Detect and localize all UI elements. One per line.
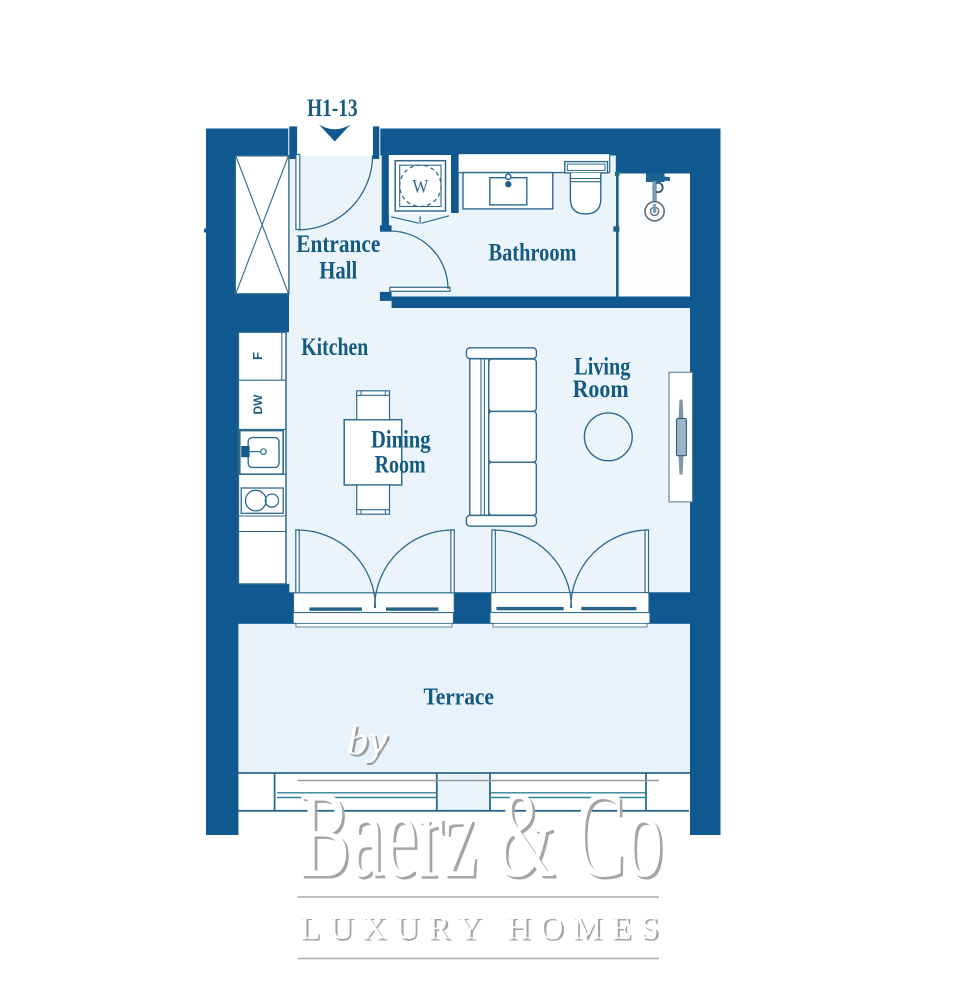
svg-text:DW: DW <box>251 394 265 415</box>
svg-text:Room: Room <box>375 452 426 479</box>
svg-text:Room: Room <box>573 376 629 403</box>
svg-text:Entrance: Entrance <box>296 231 380 258</box>
svg-text:W: W <box>412 176 428 197</box>
svg-text:Baerz & Co: Baerz & Co <box>299 768 663 903</box>
svg-text:Kitchen: Kitchen <box>301 334 368 361</box>
svg-text:Bathroom: Bathroom <box>489 240 577 267</box>
svg-text:by: by <box>347 718 388 764</box>
svg-text:H1-13: H1-13 <box>307 95 358 122</box>
svg-text:Hall: Hall <box>319 258 357 285</box>
svg-text:Dining: Dining <box>371 427 431 454</box>
svg-text:F: F <box>250 352 265 360</box>
svg-text:Terrace: Terrace <box>423 685 494 711</box>
